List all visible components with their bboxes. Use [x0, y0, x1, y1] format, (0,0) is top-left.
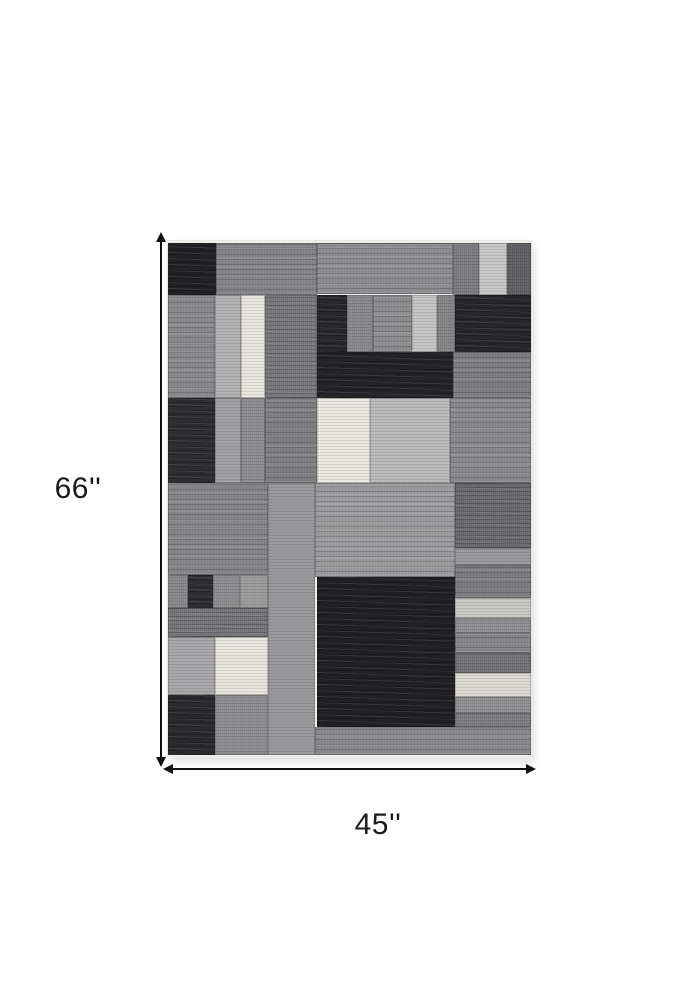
rug-block [455, 633, 531, 653]
vertical-arrow-line [160, 237, 162, 762]
rug-block [168, 637, 215, 695]
rug-block [455, 673, 531, 697]
rug-block [215, 398, 241, 483]
rug-blocks [168, 243, 531, 755]
rug-block [317, 352, 453, 398]
rug-block [507, 243, 531, 295]
rug-block [268, 483, 315, 755]
rug-block [317, 295, 347, 352]
rug-block [265, 295, 317, 398]
rug-block [240, 575, 268, 608]
rug-block [455, 295, 531, 352]
width-dimension-arrow [163, 764, 536, 774]
rug-block [315, 483, 455, 577]
rug-block [450, 398, 531, 483]
rug-block [455, 598, 531, 618]
rug-block [168, 295, 215, 398]
rug-block [317, 243, 453, 294]
rug-block [168, 398, 215, 483]
arrow-right-icon [526, 764, 536, 774]
rug-block [213, 575, 240, 608]
rug-block [168, 695, 215, 755]
rug-block [188, 575, 213, 608]
rug-block [373, 295, 412, 352]
rug-block [241, 295, 265, 398]
rug-block [317, 577, 455, 727]
rug-block [455, 548, 531, 565]
rug-block [455, 713, 531, 727]
rug-block [455, 565, 531, 598]
rug-block [241, 398, 265, 483]
rug-block [455, 618, 531, 633]
rug-block [455, 653, 531, 673]
width-dimension-label: 45'' [338, 810, 418, 840]
rug-block [215, 695, 268, 755]
rug-block [315, 727, 531, 755]
rug-block [168, 608, 268, 637]
rug-block [453, 243, 479, 295]
product-dimension-image: 66'' 45'' [0, 0, 698, 1000]
rug-block [437, 295, 455, 352]
rug-block [453, 352, 531, 398]
rug-block [479, 243, 507, 295]
rug-block [317, 398, 370, 483]
rug-block [455, 483, 531, 548]
rug-block [265, 398, 317, 483]
rug-block [168, 575, 188, 608]
height-dimension-label: 66'' [44, 474, 112, 504]
rug-block [215, 295, 241, 398]
rug-block [412, 295, 437, 352]
rug-image [168, 241, 531, 757]
rug-block [215, 637, 268, 695]
horizontal-arrow-line [168, 768, 531, 770]
rug-block [168, 243, 216, 295]
rug-block [168, 483, 268, 575]
rug-block [455, 697, 531, 713]
rug-block [216, 243, 317, 295]
rug-block [347, 295, 373, 352]
rug-block [370, 398, 450, 483]
height-dimension-arrow [156, 232, 166, 767]
